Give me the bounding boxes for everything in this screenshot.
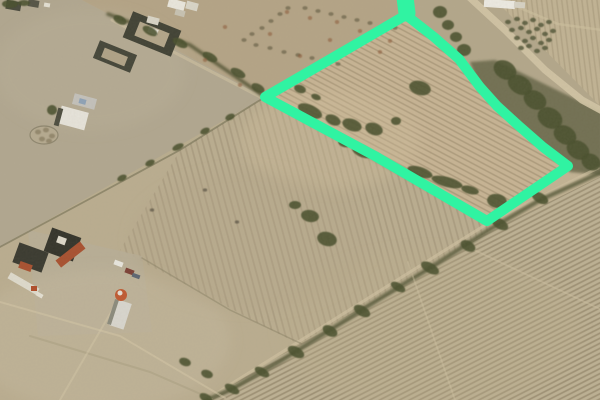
satellite-map-view[interactable] bbox=[0, 0, 600, 400]
aerial-imagery-canvas[interactable] bbox=[0, 0, 600, 400]
